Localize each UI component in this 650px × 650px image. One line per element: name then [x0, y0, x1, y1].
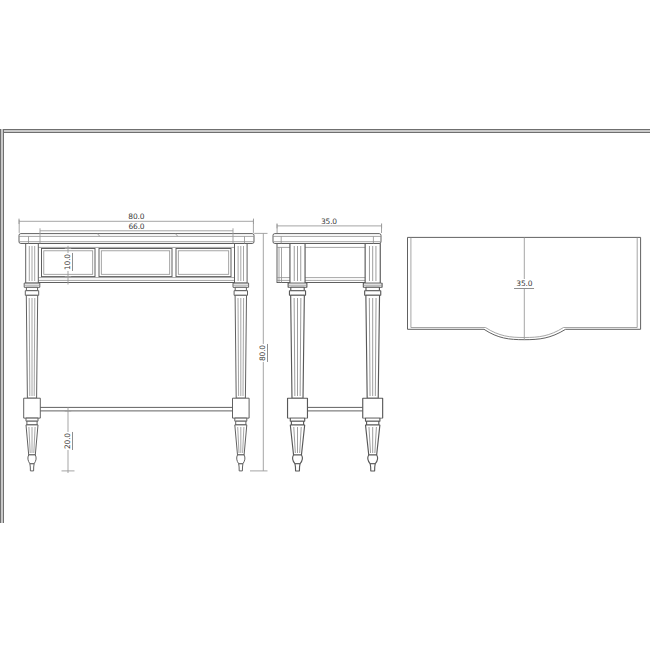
- front-inner-width-dimension-label: 66.0: [129, 222, 145, 231]
- drawing-sheet: 80.0 66.0 10.0 80.0 20.0 35.0 35.0: [0, 0, 650, 650]
- side-stretcher: [300, 407, 373, 411]
- stretcher-height-dimension-label: 20.0: [63, 432, 73, 450]
- front-stretcher: [32, 407, 241, 411]
- front-tabletop: [19, 234, 254, 244]
- front-view: [19, 234, 254, 471]
- side-front-leg: [288, 244, 308, 471]
- front-width-dimension-label: 80.0: [128, 212, 144, 221]
- side-rear-leg: [363, 244, 383, 471]
- side-view: [273, 234, 383, 471]
- cad-drawing: [0, 0, 650, 650]
- side-depth-dimension-label: 35.0: [321, 217, 337, 226]
- overall-height-dimension-label: 80.0: [258, 344, 268, 362]
- front-left-leg: [24, 244, 41, 471]
- front-right-leg: [233, 244, 250, 471]
- apron-height-dimension-label: 10.0: [63, 253, 73, 271]
- side-tabletop: [273, 234, 381, 244]
- plan-depth-dimension-label: 35.0: [514, 279, 534, 289]
